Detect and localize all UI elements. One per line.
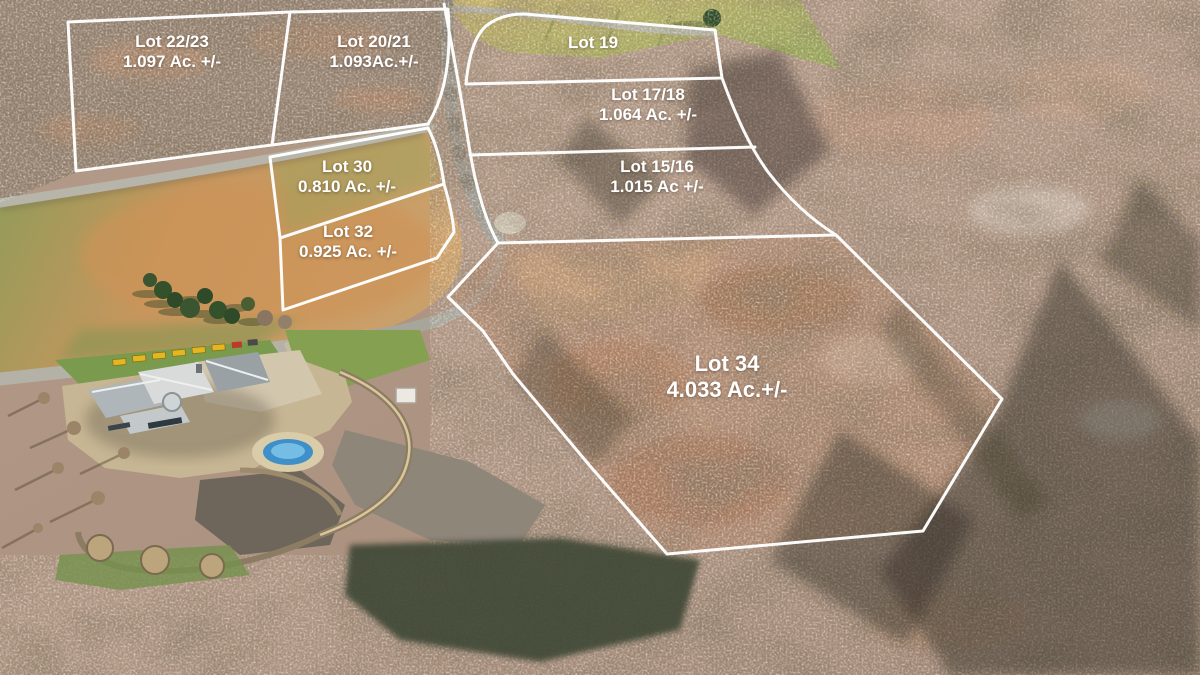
stone-bastion xyxy=(87,535,113,561)
dark-truck xyxy=(247,339,257,346)
pool-shallow xyxy=(271,443,305,459)
yellow-machine xyxy=(152,352,165,359)
yellow-machine xyxy=(132,355,145,362)
yellow-machine xyxy=(212,344,225,351)
field-dry-patch xyxy=(80,185,440,325)
pavilion xyxy=(396,388,416,403)
stone-bastion xyxy=(141,546,169,574)
aerial-lot-map: Lot 22/23 1.097 Ac. +/- Lot 20/21 1.093A… xyxy=(0,0,1200,675)
turret-roof xyxy=(163,393,181,411)
stone-bastion xyxy=(200,554,224,578)
yellow-machine xyxy=(172,349,185,356)
chimney xyxy=(196,364,202,373)
aerial-photo xyxy=(0,0,1200,675)
red-truck xyxy=(232,341,242,348)
yellow-machine xyxy=(192,347,205,354)
yellow-machine xyxy=(113,359,126,366)
